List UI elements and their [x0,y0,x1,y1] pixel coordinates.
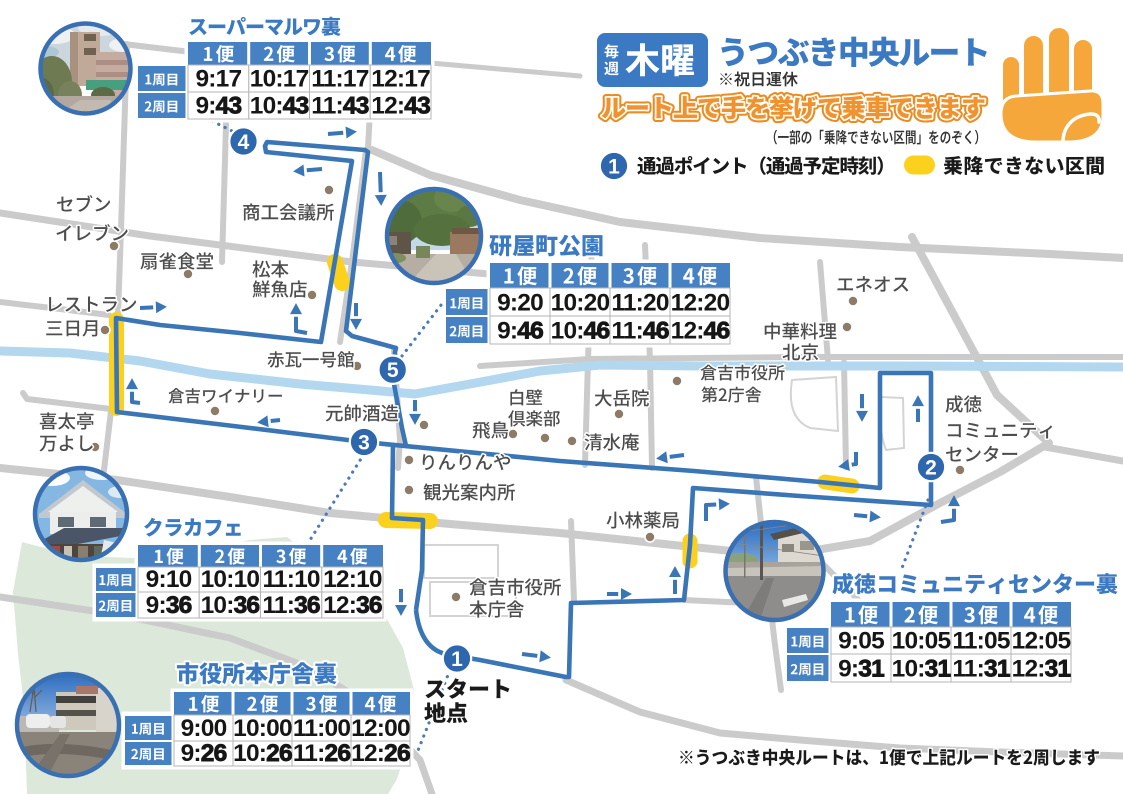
svg-text:11:46: 11:46 [611,317,668,344]
svg-text:12:17: 12:17 [371,66,430,93]
svg-text:9:17: 9:17 [195,66,241,93]
svg-text:9:20: 9:20 [497,289,543,316]
svg-text:12:46: 12:46 [671,317,730,344]
svg-text:9:26: 9:26 [181,740,227,767]
svg-text:1: 1 [451,648,463,671]
svg-text:9:46: 9:46 [497,317,543,344]
svg-text:11:10: 11:10 [262,566,319,593]
svg-text:12:26: 12:26 [351,740,410,767]
svg-text:10:26: 10:26 [233,740,292,767]
svg-text:10:36: 10:36 [201,592,260,619]
svg-text:10:46: 10:46 [551,317,610,344]
svg-text:9:10: 9:10 [146,566,192,593]
svg-text:2: 2 [925,456,937,479]
svg-text:11:17: 11:17 [311,66,368,93]
svg-text:9:00: 9:00 [181,715,227,742]
svg-text:12:10: 12:10 [323,566,382,593]
svg-text:12:31: 12:31 [1012,655,1071,682]
svg-text:1: 1 [608,155,620,178]
svg-text:11:43: 11:43 [311,93,368,120]
svg-text:10:17: 10:17 [250,66,309,93]
svg-text:9:05: 9:05 [838,628,884,655]
svg-text:10:05: 10:05 [892,628,951,655]
svg-text:11:36: 11:36 [262,592,319,619]
svg-text:10:31: 10:31 [892,655,951,682]
svg-text:10:10: 10:10 [201,566,260,593]
svg-text:11:05: 11:05 [952,628,1009,655]
svg-text:12:36: 12:36 [323,592,382,619]
svg-text:10:00: 10:00 [233,715,292,742]
svg-text:9:31: 9:31 [838,655,884,682]
svg-text:4: 4 [238,131,250,154]
svg-text:10:43: 10:43 [250,93,309,120]
svg-text:12:43: 12:43 [371,93,430,120]
svg-text:9:43: 9:43 [195,93,241,120]
svg-text:5: 5 [387,359,399,382]
svg-text:10:20: 10:20 [551,289,610,316]
svg-text:12:20: 12:20 [671,289,730,316]
svg-text:11:26: 11:26 [293,740,350,767]
svg-text:12:00: 12:00 [351,715,410,742]
svg-text:12:05: 12:05 [1012,628,1071,655]
svg-text:9:36: 9:36 [146,592,192,619]
svg-text:11:00: 11:00 [293,715,350,742]
svg-text:11:31: 11:31 [952,655,1009,682]
svg-text:11:20: 11:20 [611,289,668,316]
svg-text:3: 3 [358,431,370,454]
